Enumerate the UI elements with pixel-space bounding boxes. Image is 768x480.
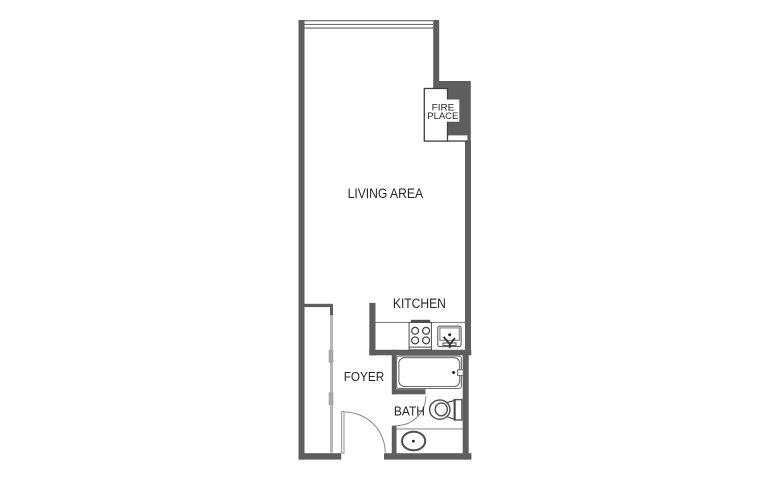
svg-text:PLACE: PLACE bbox=[427, 111, 458, 122]
svg-text:KITCHEN: KITCHEN bbox=[393, 296, 446, 311]
svg-text:LIVING AREA: LIVING AREA bbox=[348, 185, 424, 201]
svg-text:FOYER: FOYER bbox=[344, 369, 385, 384]
svg-text:BATH: BATH bbox=[394, 404, 425, 418]
